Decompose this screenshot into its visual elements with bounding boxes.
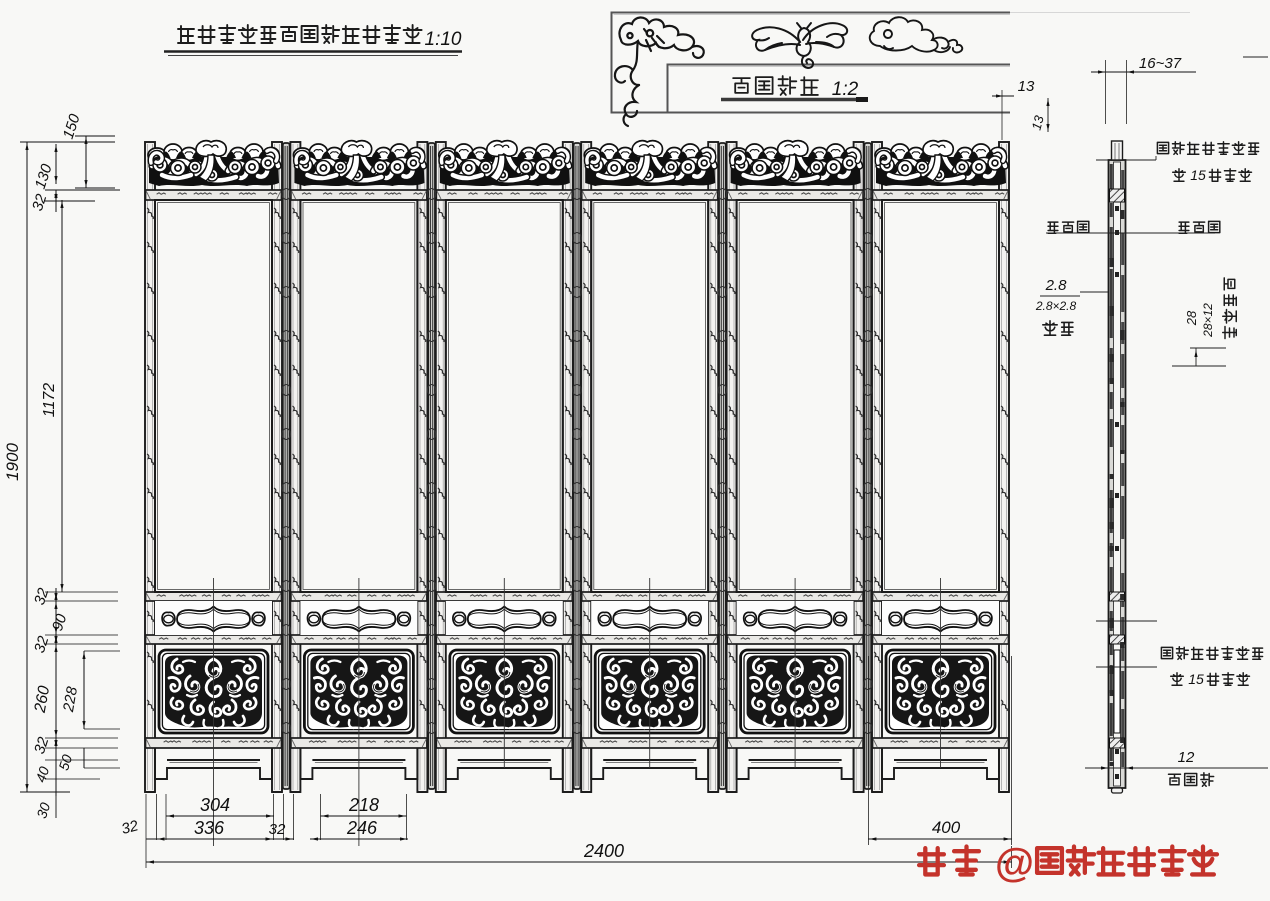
svg-text:1:2: 1:2: [832, 79, 859, 100]
svg-text:12: 12: [1178, 749, 1195, 766]
svg-text:2.8: 2.8: [1045, 277, 1068, 294]
svg-text:304: 304: [200, 795, 230, 815]
svg-text:246: 246: [346, 818, 378, 838]
svg-text:400: 400: [932, 818, 961, 837]
svg-text:32: 32: [269, 821, 286, 838]
svg-text:1:10: 1:10: [425, 29, 462, 50]
svg-text:1172: 1172: [41, 383, 58, 418]
svg-text:15: 15: [1190, 167, 1206, 183]
svg-text:16~37: 16~37: [1139, 55, 1182, 72]
svg-text:2400: 2400: [583, 841, 624, 861]
svg-text:28×12: 28×12: [1201, 303, 1215, 338]
svg-text:1900: 1900: [3, 443, 22, 481]
svg-text:336: 336: [194, 818, 225, 838]
svg-text:15: 15: [1188, 671, 1204, 687]
svg-text:2.8×2.8: 2.8×2.8: [1035, 299, 1077, 313]
svg-text:218: 218: [348, 795, 379, 815]
svg-text:13: 13: [1018, 78, 1035, 95]
svg-text:@: @: [995, 841, 1034, 885]
svg-text:28: 28: [1184, 310, 1199, 326]
